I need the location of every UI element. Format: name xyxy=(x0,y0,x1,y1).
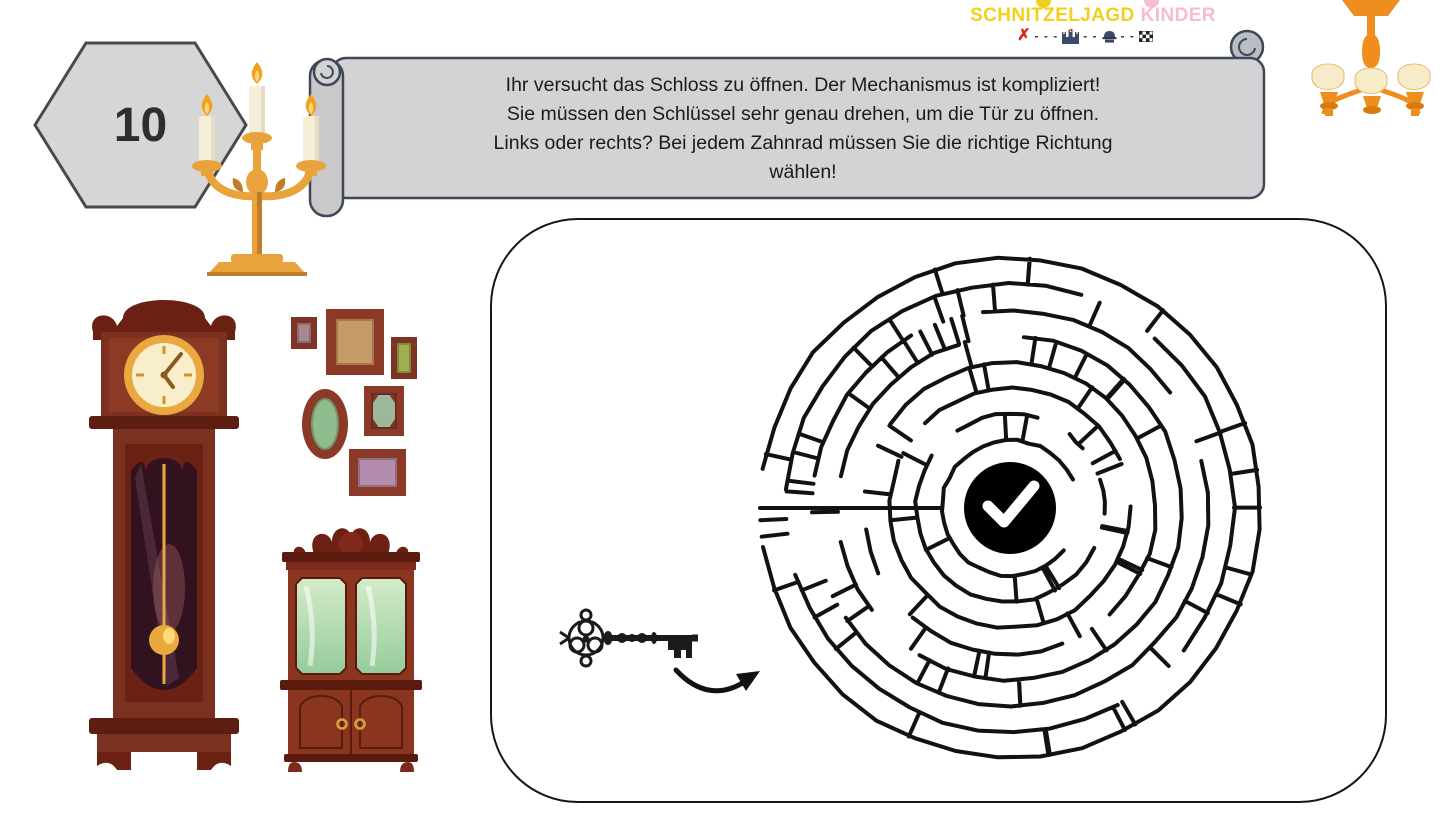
maze-svg xyxy=(750,248,1270,768)
picture-frame-small xyxy=(291,317,317,349)
worksheet-page: SCHNITZELJAGDKINDER ✗ - - - - - - - xyxy=(0,0,1445,815)
instruction-line: wählen! xyxy=(346,158,1260,187)
display-cabinet-illustration xyxy=(276,524,426,774)
chandelier-illustration xyxy=(1302,0,1440,142)
picture-frame-green xyxy=(391,337,417,379)
frame-mat xyxy=(373,395,395,427)
schnitzeljagd-logo: SCHNITZELJAGDKINDER xyxy=(948,5,1238,27)
picture-frame-large xyxy=(326,309,384,375)
picture-frame-purple xyxy=(349,449,406,496)
instruction-line: Sie müssen den Schlüssel sehr genau dreh… xyxy=(346,100,1260,129)
instruction-line: Ihr versucht das Schloss zu öffnen. Der … xyxy=(346,71,1260,100)
logo-word-kinder: KINDER xyxy=(1138,5,1219,26)
picture-frame-octagon xyxy=(364,386,404,436)
curved-arrow-icon xyxy=(670,658,765,703)
logo-word-schnitzeljagd: SCHNITZELJAGD xyxy=(967,5,1138,26)
clock-face xyxy=(124,335,204,415)
grandfather-clock-illustration xyxy=(83,288,245,774)
picture-frame-oval xyxy=(302,389,348,459)
instruction-line: Links oder rechts? Bei jedem Zahnrad müs… xyxy=(346,129,1260,158)
candelabra-stem xyxy=(207,148,307,276)
chandelier-shades xyxy=(1312,64,1430,116)
key-bit xyxy=(668,641,692,658)
instruction-text: Ihr versucht das Schloss zu öffnen. Der … xyxy=(346,71,1260,187)
candelabra-illustration xyxy=(183,56,335,282)
